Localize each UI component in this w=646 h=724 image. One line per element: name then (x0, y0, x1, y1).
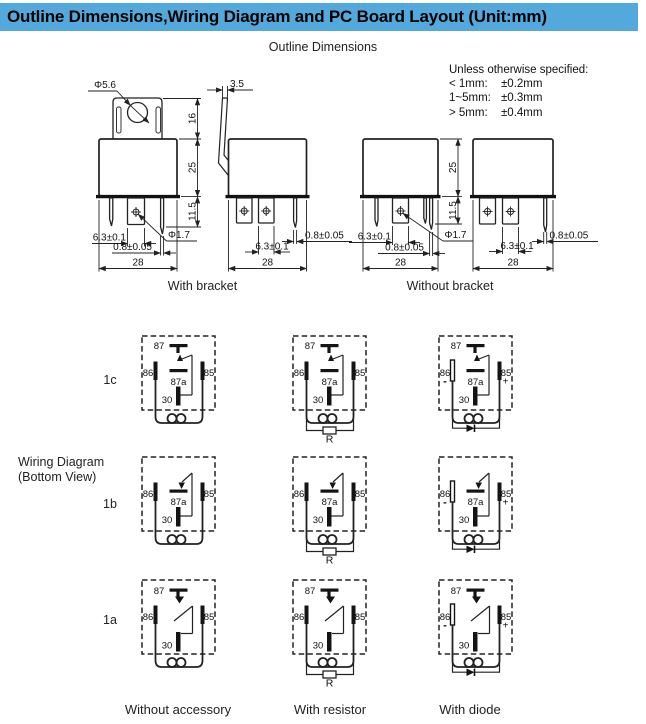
wiring-cell-1c-with-diode (401, 330, 551, 455)
wiring-cell-1a-with-resistor (255, 574, 405, 699)
symbol-use (162, 473, 192, 527)
symbol-use (451, 341, 489, 406)
dim-label-pin-length: 11.5 (188, 202, 199, 221)
dim-label-pin-length: 11.5 (448, 201, 459, 220)
symbol-use (154, 586, 193, 652)
pin-narrow (375, 198, 378, 227)
relay-front-without-bracket: 0.8±0.05 6.3±0.1 28 (470, 139, 598, 272)
dim-label-pin-thickness: 0.8±0.05 (305, 231, 344, 242)
accessory-use (453, 418, 500, 432)
dim-label-pin-thickness: 0.8±0.05 (550, 231, 589, 242)
wiring-cell-1a-without-accessory (104, 574, 254, 699)
wiring-cell-1b-with-resistor (255, 451, 405, 576)
pin-narrow (161, 198, 164, 234)
pin-narrow (110, 198, 113, 226)
wiring-cell-1c-with-resistor (255, 330, 405, 455)
pin-narrow (424, 198, 427, 224)
pin-narrow (294, 198, 297, 228)
symbol-use (459, 473, 489, 527)
symbol-use (154, 341, 192, 406)
dim-label-bracket-hole: Φ5.6 (94, 80, 116, 91)
wiring-section-label-line1: Wiring Diagram (18, 455, 128, 470)
symbol-use (313, 473, 343, 527)
relay-side-without-bracket: 25 11.5 Φ1.7 6.3±0.1 0.8±0.05 (349, 139, 473, 272)
dim-label-pin-width: 6.3±0.1 (255, 241, 289, 252)
caption-without-bracket: Without bracket (385, 279, 515, 293)
section-header-bar: Outline Dimensions,Wiring Diagram and PC… (0, 3, 638, 31)
dim-label-pin-thickness: 0.8±0.05 (113, 242, 152, 253)
row-label-1b: 1b (98, 497, 122, 511)
bracket-slot (156, 107, 161, 133)
symbol-use (305, 586, 344, 652)
relay-body (363, 139, 438, 196)
accessory-use (453, 539, 500, 553)
caption-with-resistor: With resistor (265, 702, 395, 717)
wiring-section-label-line2: (Bottom View) (18, 470, 128, 485)
dim-label-body-width: 28 (395, 258, 407, 269)
dim-label-pin-hole: Φ1.7 (445, 230, 467, 241)
relay-body (99, 139, 177, 196)
wiring-section-label: Wiring Diagram (Bottom View) (18, 455, 128, 485)
caption-with-diode: With diode (405, 702, 535, 717)
dim-label-body-height: 25 (188, 162, 199, 174)
outline-dimensions-subtitle: Outline Dimensions (223, 40, 423, 54)
wiring-cell-1b-with-diode (401, 451, 551, 576)
caption-without-accessory: Without accessory (108, 702, 248, 717)
dim-label-pin-width: 6.3±0.1 (500, 241, 534, 252)
page-title: Outline Dimensions,Wiring Diagram and PC… (0, 7, 547, 27)
dim-label-bracket-height: 16 (188, 113, 199, 125)
relay-body (229, 139, 307, 196)
pin-narrow (430, 198, 433, 230)
mounting-bracket-side (219, 98, 229, 176)
outline-dimension-drawings: Φ5.6 16 25 11.5 (0, 60, 646, 305)
symbol-use (305, 341, 343, 406)
row-label-1c: 1c (98, 373, 122, 387)
pin-narrow (544, 198, 547, 232)
dim-label-body-width: 28 (262, 258, 274, 269)
relay-side-with-bracket: 3.5 0.8±0.05 (207, 79, 352, 272)
relay-front-with-bracket: Φ5.6 16 25 11.5 (88, 80, 201, 272)
wiring-cell-1a-with-diode (401, 574, 551, 699)
symbol-use (451, 586, 490, 652)
accessory-use (453, 662, 500, 676)
dim-label-pin-hole: Φ1.7 (168, 230, 190, 241)
dim-label-bracket-thickness: 3.5 (230, 79, 244, 90)
dim-label-body-width: 28 (132, 258, 144, 269)
datasheet-page: Outline Dimensions,Wiring Diagram and PC… (0, 0, 646, 724)
caption-with-bracket: With bracket (145, 279, 260, 293)
dim-label-pin-thickness: 0.8±0.05 (385, 243, 424, 254)
relay-body (473, 139, 553, 196)
bracket-slot (117, 107, 122, 133)
row-label-1a: 1a (98, 613, 122, 627)
mounting-bracket (113, 98, 162, 140)
wiring-cell-1c-without-accessory (104, 330, 254, 455)
dim-label-body-width: 28 (507, 258, 519, 269)
dim-label-body-height: 25 (448, 162, 459, 174)
